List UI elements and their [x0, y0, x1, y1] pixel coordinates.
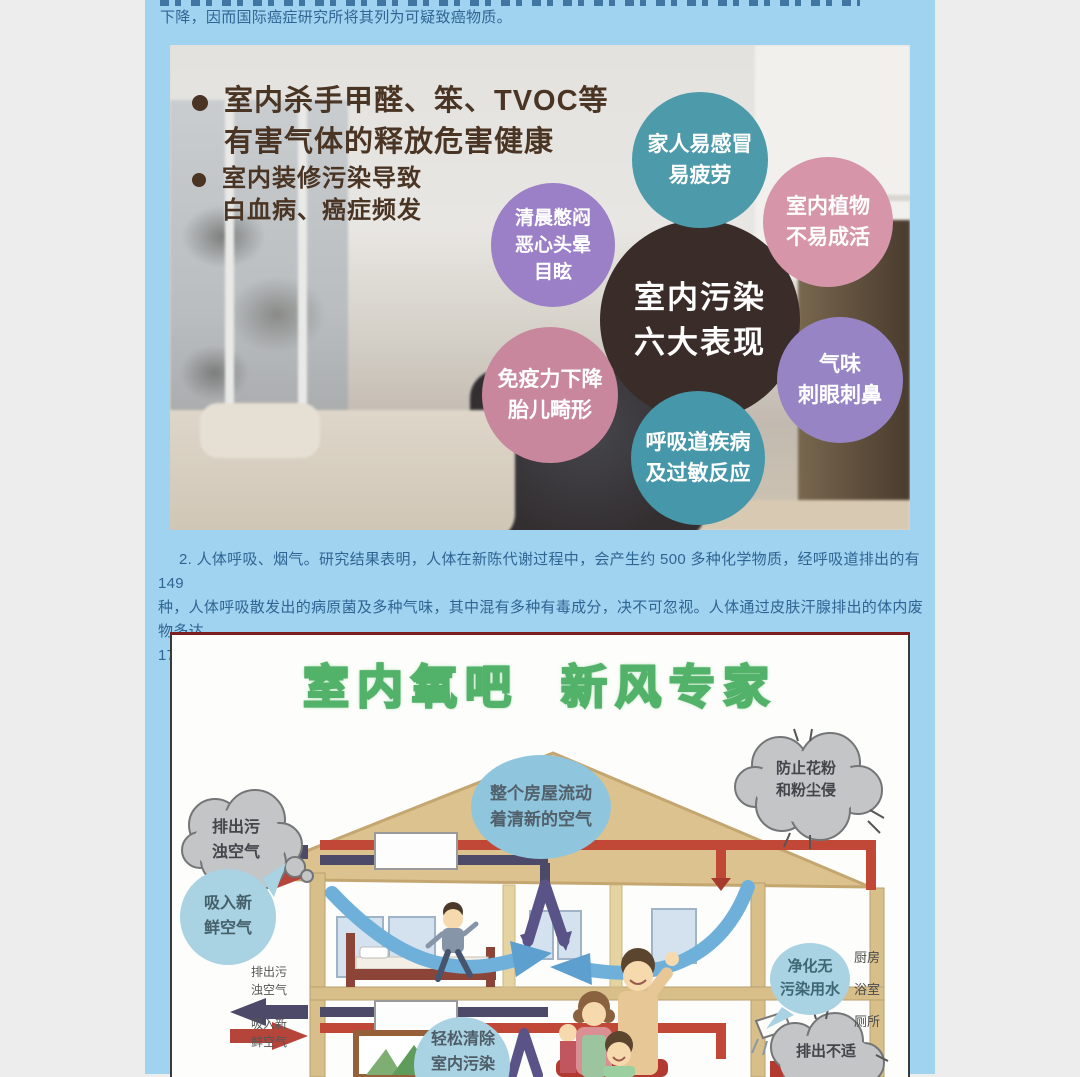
- title-fresh-air-expert: 新风专家: [561, 661, 777, 713]
- article-page: { "article": { "line_cut": "下降，因而国际癌症研究所…: [0, 0, 1080, 1074]
- bullet-dot-icon: [192, 95, 208, 111]
- circle-odor-irritation: 气味 刺眼刺鼻: [777, 317, 903, 443]
- label-line: 轻松清除: [416, 1027, 510, 1052]
- circle-text: 恶心头晕: [515, 232, 591, 259]
- circle-text: 免疫力下降: [498, 364, 603, 395]
- circle-text: 室内植物: [786, 191, 870, 222]
- label-kitchen: 厨房: [854, 947, 894, 966]
- label-fresh-air-in: 吸入新 鲜空气: [182, 891, 274, 941]
- label-line: 整个房屋流动: [471, 781, 611, 807]
- label-line: 鲜空气: [236, 1033, 302, 1051]
- label-line: 鲜空气: [182, 916, 274, 941]
- bullet-line: 室内装修污染导致: [222, 163, 422, 195]
- paragraph-formaldehyde-end: 下降，因而国际癌症研究所将其列为可疑致癌物质。: [160, 6, 920, 30]
- label-line: 污染用水: [768, 978, 852, 1001]
- label-block-pollen: 防止花粉 和粉尘侵: [750, 758, 862, 802]
- label-toilet: 厕所: [854, 1011, 894, 1030]
- label-line: 室内污染: [416, 1052, 510, 1077]
- circle-respiratory-disease: 呼吸道疾病 及过敏反应: [631, 391, 765, 525]
- circle-immunity-drop: 免疫力下降 胎儿畸形: [482, 327, 618, 463]
- bullet-harmful-gases: 室内杀手甲醛、笨、TVOC等 有害气体的释放危害健康: [192, 81, 609, 163]
- infographic-indoor-pollution[interactable]: 室内杀手甲醛、笨、TVOC等 有害气体的释放危害健康 室内装修污染导致 白血病、…: [170, 45, 910, 530]
- bullet-line: 室内杀手甲醛、笨、TVOC等: [224, 81, 609, 122]
- bullet-dot-icon: [192, 173, 206, 187]
- label-fresh-air-small: 吸入新 鲜空气: [236, 1015, 302, 1051]
- label-remove-pollution: 轻松清除 室内污染: [416, 1027, 510, 1077]
- infographic-fresh-air-house[interactable]: 室内氧吧新风专家: [170, 632, 910, 1077]
- circle-text: 室内污染: [634, 275, 766, 320]
- circle-family-cold: 家人易感冒 易疲劳: [632, 92, 768, 228]
- circle-text: 气味: [819, 349, 861, 380]
- label-bathroom: 浴室: [854, 979, 894, 998]
- bullet-line: 有害气体的释放危害健康: [224, 122, 609, 163]
- label-whole-house-airflow: 整个房屋流动 着清新的空气: [471, 781, 611, 833]
- circle-text: 刺眼刺鼻: [798, 380, 882, 411]
- circle-text: 六大表现: [634, 320, 766, 365]
- bullet-line: 白血病、癌症频发: [222, 195, 422, 227]
- label-line: 和粉尘侵: [750, 780, 862, 802]
- article-column: 下降，因而国际癌症研究所将其列为可疑致癌物质。 室内杀手甲醛、笨、TVOC等 有…: [145, 0, 935, 1074]
- circle-text: 易疲劳: [669, 160, 732, 191]
- circle-text: 清晨憋闷: [515, 205, 591, 232]
- label-line: 排出污: [190, 815, 282, 840]
- photo-cushion: [200, 403, 320, 458]
- label-line: 浊空气: [190, 840, 282, 865]
- circle-text: 不易成活: [786, 222, 870, 253]
- bullet-decoration-pollution: 室内装修污染导致 白血病、癌症频发: [192, 163, 422, 227]
- circle-text: 及过敏反应: [646, 458, 751, 489]
- circle-text: 胎儿畸形: [508, 395, 592, 426]
- title-oxygen-bar: 室内氧吧: [303, 661, 519, 713]
- label-clean-water: 净化无 污染用水: [768, 955, 852, 1001]
- paragraph-line: 2. 人体呼吸、烟气。研究结果表明，人体在新陈代谢过程中，会产生约 500 多种…: [158, 548, 924, 596]
- circle-morning-dizzy: 清晨憋闷 恶心头晕 目眩: [491, 183, 615, 307]
- label-line: 吸入新: [182, 891, 274, 916]
- label-line: 净化无: [768, 955, 852, 978]
- label-line: 吸入新: [236, 1015, 302, 1033]
- label-line: 排出不适: [780, 1041, 872, 1063]
- label-exhaust-air: 排出污 浊空气: [190, 815, 282, 865]
- label-line: 浊空气: [236, 981, 302, 999]
- circle-plants-die: 室内植物 不易成活: [763, 157, 893, 287]
- circle-text: 家人易感冒: [648, 129, 753, 160]
- circle-text: 呼吸道疾病: [646, 427, 751, 458]
- label-line: 防止花粉: [750, 758, 862, 780]
- infographic-title: 室内氧吧新风专家: [170, 651, 910, 717]
- label-line: 着清新的空气: [471, 807, 611, 833]
- label-line: 排出污: [236, 963, 302, 981]
- label-exhaust-air-small: 排出污 浊空气: [236, 963, 302, 999]
- circle-text: 目眩: [534, 259, 572, 286]
- label-expel-unpleasant: 排出不适: [780, 1041, 872, 1063]
